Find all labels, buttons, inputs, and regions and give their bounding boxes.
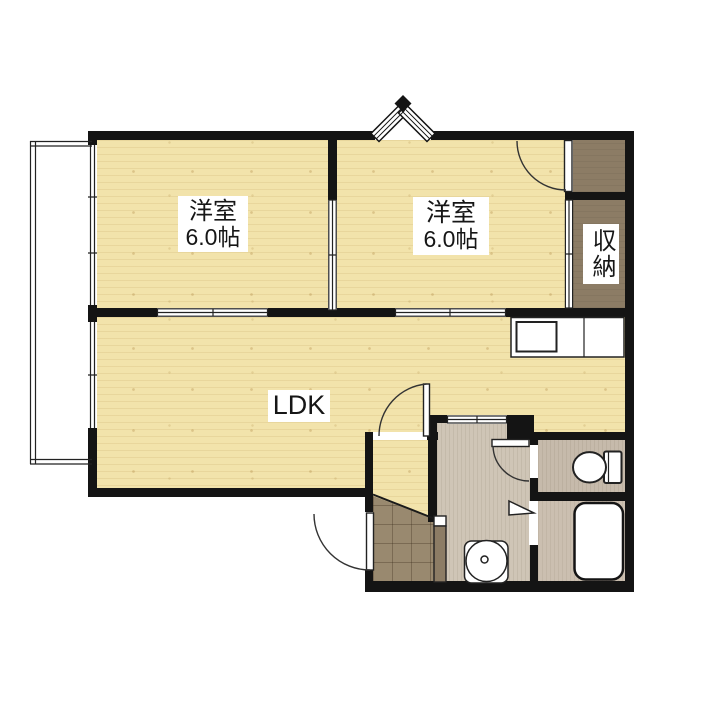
door-entrance-washroom <box>434 526 446 582</box>
linework-overlay <box>0 0 720 720</box>
outswing-window <box>371 95 435 142</box>
door-leaf-toilet <box>492 440 529 447</box>
balcony-rail <box>30 141 92 464</box>
folding-door-bath <box>509 501 534 515</box>
door-jamb-entrance-washroom <box>434 516 446 526</box>
door-leaf-bedroom2-closet <box>565 141 573 192</box>
sliding-door-washroom-lines <box>448 416 507 423</box>
sliding-door-bedroom2-ldk-lines <box>395 309 506 316</box>
entrance-step-line <box>373 495 434 519</box>
sliding-door-bedroom1-ldk-lines <box>157 309 268 316</box>
sliding-partition-bedrooms-lines <box>329 200 336 310</box>
toilet <box>573 452 622 484</box>
label-bedroom-right: 洋室 6.0帖 <box>413 197 489 255</box>
kitchen-counter <box>511 318 624 358</box>
door-arc-bedroom2-closet <box>517 141 566 190</box>
door-leaf-entrance <box>367 513 374 570</box>
door-leaf-hall <box>424 384 430 436</box>
storage-name: 収納 <box>588 228 614 280</box>
sliding-door-storage-lines <box>565 200 572 308</box>
floor-plan: 洋室 6.0帖 洋室 6.0帖 LDK 収納 <box>0 0 720 720</box>
window-ldk-glass <box>88 322 97 428</box>
window-bedroom-left-glass <box>88 145 97 305</box>
door-arc-toilet <box>493 446 529 481</box>
label-bedroom-left: 洋室 6.0帖 <box>178 196 248 252</box>
bedroom-right-name: 洋室 <box>426 200 476 227</box>
bedroom-left-size: 6.0帖 <box>186 225 241 250</box>
door-arc-entrance <box>314 514 370 570</box>
bedroom-right-size: 6.0帖 <box>424 227 479 252</box>
kitchen-sink <box>517 322 557 352</box>
bedroom-left-name: 洋室 <box>189 199 237 225</box>
bathtub <box>575 503 624 580</box>
door-arc-hall <box>379 384 427 436</box>
washbasin <box>465 541 509 584</box>
label-ldk: LDK <box>268 390 330 422</box>
label-storage: 収納 <box>583 224 619 284</box>
ldk-name: LDK <box>273 391 326 420</box>
